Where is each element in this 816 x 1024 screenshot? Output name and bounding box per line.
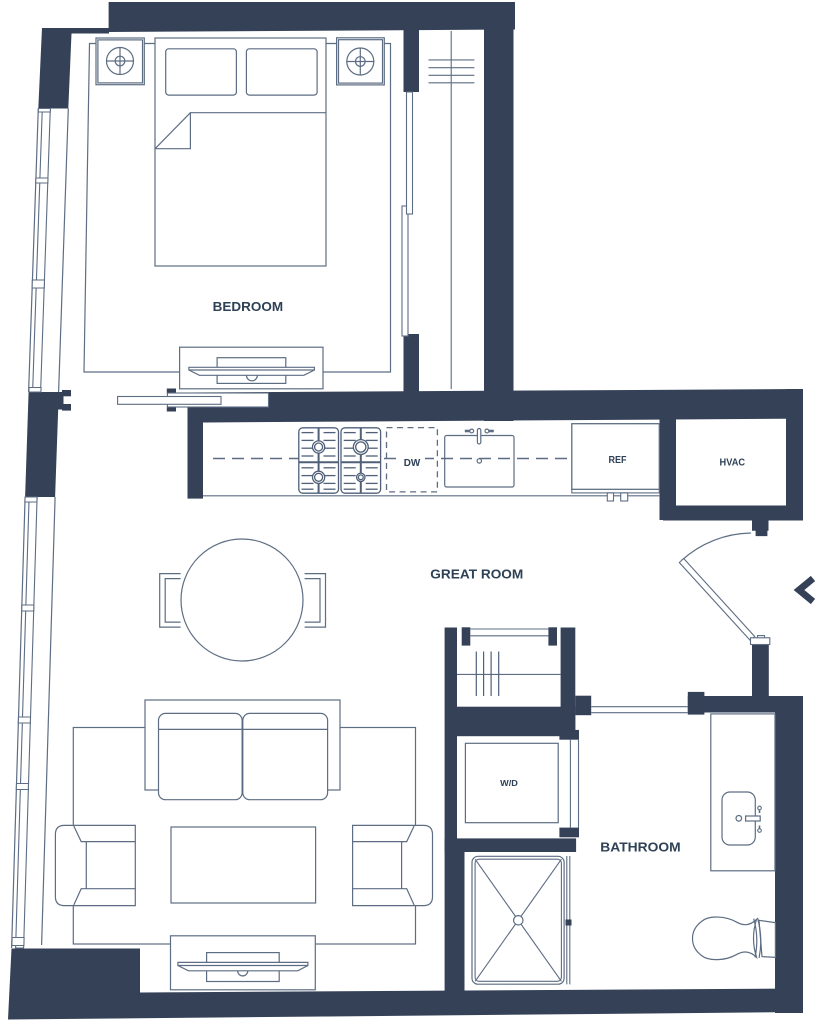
- svg-text:W/D: W/D: [500, 778, 518, 788]
- svg-text:DW: DW: [404, 457, 421, 469]
- svg-text:BEDROOM: BEDROOM: [213, 300, 284, 314]
- svg-text:HVAC: HVAC: [720, 456, 746, 468]
- svg-text:REF: REF: [609, 454, 628, 466]
- svg-text:GREAT ROOM: GREAT ROOM: [430, 568, 523, 582]
- svg-text:BATHROOM: BATHROOM: [600, 841, 680, 855]
